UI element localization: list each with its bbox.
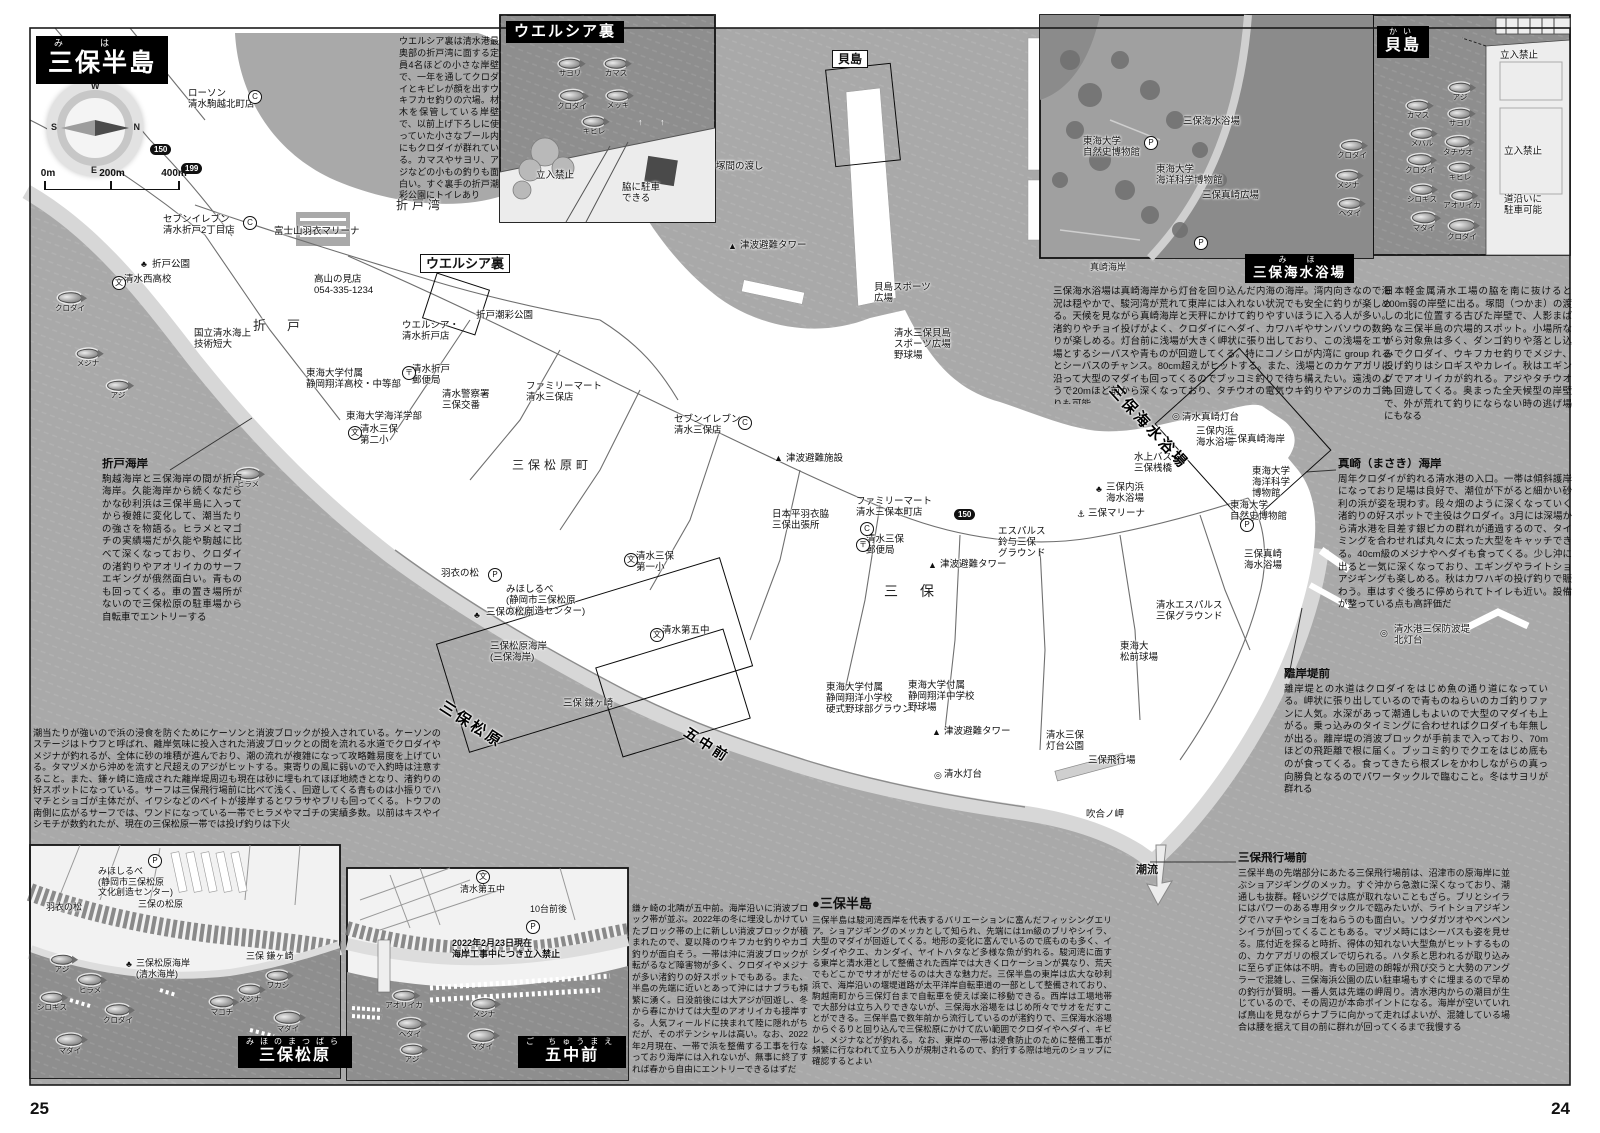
fish-icon: サヨリ	[1449, 109, 1472, 128]
map-label: 三保内浜 海水浴場	[1106, 482, 1144, 504]
map-label: 三保真崎広場	[1202, 190, 1259, 201]
map-label: 羽衣の松	[441, 568, 479, 579]
map-label: 東海大学付属 静岡翔洋小学校 硬式野球部グラウンド	[826, 682, 921, 716]
school-icon: 文	[348, 426, 362, 440]
overlay-layer: み は 三保半島 N W S E 0m 200m 400m ウエルシア裏	[0, 0, 1600, 1133]
map-label: 清水エスパルス 三保グラウンド	[1156, 600, 1223, 622]
compass-south: S	[51, 122, 57, 132]
map-label: 2022年2月23日現在 海岸工事中につき立入禁止	[452, 938, 560, 959]
map-label: 東海大 松前球場	[1120, 641, 1158, 663]
fish-icon: アオリイカ	[1443, 191, 1481, 210]
map-label: 清水三保貝島 スポーツ広場 野球場	[894, 328, 951, 362]
fish-icon: メッキ	[607, 91, 630, 110]
page-title: 三保半島	[48, 49, 156, 78]
text-block-gochumae: 鎌ヶ崎の北隣が五中前。海岸沿いに消波ブロック帯が並ぶ。2022年の冬に埋没しかけ…	[632, 903, 808, 1083]
map-label: 三 保	[884, 583, 938, 600]
arrow-icon: ↑	[660, 118, 665, 127]
map-label: 三保飛行場	[1088, 755, 1136, 766]
map-label: 真崎海岸	[1090, 262, 1126, 273]
map-label: 清水三保 第一小	[636, 551, 674, 573]
text-block-rigantei: 離岸堤前 離岸堤との水道はクロダイをはじめ魚の通り道になっている。岬状に張り出し…	[1284, 668, 1548, 798]
map-label: 三保真崎 海水浴場	[1244, 549, 1282, 571]
route-badge: 150	[150, 144, 171, 155]
map-label: 清水第五中	[662, 625, 710, 636]
route-badge: 199	[181, 163, 202, 174]
scale-bar: 0m 200m 400m	[44, 168, 180, 190]
school-icon: 文	[650, 628, 664, 642]
map-label: 清水西高校	[124, 274, 172, 285]
fish-icon: メジナ	[1337, 171, 1360, 190]
map-label: みほしるべ (静岡市三保松原 文化創造センター)	[98, 866, 173, 898]
tree-icon: ♣	[1096, 485, 1102, 494]
fish-icon: ヘダイ	[1339, 199, 1362, 218]
tree-icon: ♣	[126, 960, 132, 969]
parking-icon: P	[1194, 236, 1208, 250]
map-label: 津波避難施設	[786, 453, 843, 464]
fish-icon: クロダイ	[103, 1004, 133, 1024]
text-block-orido: 折戸海岸 駒越海岸と三保海岸の間が折戸海岸。久能海岸から続くなだらかな砂利浜は三…	[102, 458, 242, 638]
kaijima-map-tag: 貝島	[832, 50, 868, 68]
tsunami-tower-icon: ▲	[774, 454, 783, 463]
fish-icon: ヒラメ	[78, 974, 102, 994]
map-label: 脇に駐車 できる	[622, 182, 660, 204]
map-label: 三保マリーナ	[1088, 508, 1145, 519]
fish-icon: クロダイ	[557, 90, 587, 110]
map-label: 道沿いに 駐車可能	[1504, 194, 1542, 216]
compass-north: N	[134, 122, 141, 132]
fish-icon: クロダイ	[1405, 154, 1435, 174]
fish-icon: キビレ	[583, 117, 606, 136]
map-label: 清水真崎灯台	[1182, 412, 1239, 423]
map-label: 三保の松原	[486, 607, 534, 618]
fish-icon: メジナ	[472, 998, 496, 1018]
lighthouse-icon: ◎	[1380, 629, 1388, 638]
link-rect-kaijima	[825, 63, 901, 167]
map-label: 折戸公園	[152, 259, 190, 270]
fish-icon: アジ	[1449, 83, 1471, 102]
map-label: 三保 鎌ヶ崎	[563, 698, 613, 709]
text-block-masaki: 真崎（まさき）海岸 周年クロダイが釣れる清水港の入口。一帯は傾斜護岸になっており…	[1338, 458, 1572, 608]
map-label: 三保松原町	[512, 458, 592, 472]
fish-icon: クロダイ	[1337, 141, 1367, 160]
page-number-left: 25	[30, 1099, 49, 1119]
map-label: 日本平羽衣脇 三保出張所	[772, 509, 829, 531]
inset-title-matsubara: みほのまつばら 三保松原	[238, 1036, 352, 1068]
map-label: ファミリーマート 清水三保本町店	[856, 496, 932, 518]
fish-icon: メジナ	[77, 349, 100, 368]
page-title-furigana: み は	[48, 39, 156, 49]
fish-icon: メバル	[1411, 129, 1434, 148]
lighthouse-icon: ◎	[1172, 412, 1180, 421]
lighthouse-icon: ◎	[934, 771, 942, 780]
post-office-icon: 〒	[856, 538, 870, 552]
arrow-icon: ↑	[638, 118, 643, 127]
map-label: 三保海水浴場	[1183, 116, 1240, 127]
text-block-kaijima: 日本軽金属清水工場の脇を南に抜けると200m弱の岸壁に出る。塚間（つかま）の渡し…	[1384, 286, 1572, 436]
text-block-miho-beach: 三保海水浴場は真崎海岸から灯台を回り込んだ内海の海岸。湾内向きなので海況は穏やか…	[1053, 286, 1391, 404]
school-icon: 文	[112, 276, 126, 290]
map-label: エスパルス 鈴与三保 グラウンド	[998, 526, 1046, 560]
map-label: 三保松原海岸 (三保海岸)	[490, 641, 547, 663]
fish-icon: キビレ	[1449, 163, 1472, 182]
marina-icon: ⚓	[1077, 510, 1085, 519]
fish-icon: ヘダイ	[398, 1018, 422, 1038]
scale-200: 200m	[99, 168, 125, 179]
map-label: 東海大学 海洋科学 博物館	[1252, 466, 1290, 500]
map-label: 立入禁止	[536, 170, 574, 181]
fish-icon: カマス	[605, 59, 628, 78]
map-label: 三保真崎海岸	[1228, 434, 1285, 445]
fish-icon: シロギス	[1407, 185, 1437, 204]
fish-icon: マダイ	[57, 1034, 83, 1054]
map-label: 吹合ノ岬	[1086, 809, 1124, 820]
map-label: ファミリーマート 清水三保店	[526, 381, 602, 403]
route-badge: 150	[954, 509, 975, 520]
map-label: 国立清水海上 技術短大	[194, 328, 251, 350]
fish-icon: クロダイ	[55, 292, 85, 312]
tree-icon: ♣	[141, 260, 147, 269]
map-label: 折戸潮彩公園	[476, 310, 533, 321]
fish-icon: アオリイカ	[385, 991, 423, 1010]
map-label: 東海大学 自然史博物館	[1230, 500, 1287, 522]
school-icon: 文	[624, 553, 638, 567]
fish-icon: サヨリ	[559, 59, 582, 78]
inset-title-welcia: ウエルシア裏	[506, 21, 624, 43]
school-icon: 文	[476, 870, 490, 884]
map-label: 羽衣の松	[46, 902, 82, 913]
parking-icon: P	[526, 920, 540, 934]
map-label: 10台前後	[530, 904, 567, 915]
parking-icon: P	[1240, 518, 1254, 532]
map-label: 清水第五中	[460, 884, 505, 895]
text-block-airfield: 三保飛行場前 三保半島の先端部分にあたる三保飛行場前は、沼津市の原海岸に並ぶショ…	[1238, 852, 1510, 1034]
fish-icon: クロダイ	[1447, 220, 1477, 240]
inset-title-kaijima: かい 貝島	[1377, 26, 1429, 58]
map-label: 清水三保 第二小	[360, 424, 398, 446]
map-label: 清水港三保防波堤 北灯台	[1394, 624, 1470, 646]
page-number-right: 24	[1551, 1099, 1570, 1119]
convenience-store-icon: C	[243, 216, 257, 230]
fish-icon: マダイ	[1412, 212, 1436, 232]
fish-icon: アジ	[51, 955, 73, 974]
welcia-map-tag: ウエルシア裏	[420, 254, 510, 273]
inset-title-gochumae: ご ちゅうまえ 五中前	[518, 1036, 626, 1068]
map-label: 潮流	[1136, 864, 1158, 877]
map-label: セブンイレブン 清水三保店	[674, 414, 741, 436]
tsunami-tower-icon: ▲	[728, 242, 737, 251]
map-label: 清水三保 灯台公園	[1046, 730, 1084, 752]
fish-icon: アジ	[401, 1045, 423, 1064]
map-label: 清水三保 郵便局	[866, 534, 904, 556]
compass-rose: N W S E	[47, 80, 143, 176]
map-label: 東海大学海洋学部	[346, 411, 422, 422]
compass-needle-tail-icon	[61, 120, 95, 136]
magazine-map-spread: み は 三保半島 N W S E 0m 200m 400m ウエルシア裏	[0, 0, 1600, 1133]
map-label: 清水灯台	[944, 769, 982, 780]
fish-icon: カマス	[1407, 101, 1430, 120]
map-label: 富士山羽衣マリーナ	[274, 226, 360, 237]
post-office-icon: 〒	[402, 366, 416, 380]
map-label: 塚間の渡し	[716, 161, 764, 172]
map-label: 津波避難タワー	[944, 726, 1011, 737]
tsunami-tower-icon: ▲	[928, 561, 937, 570]
map-label: 津波避難タワー	[940, 559, 1007, 570]
text-block-matsubara: 潮当たりが強いので浜の浸食を防ぐためにケーソンと消波ブロックが投入されている。ケ…	[33, 728, 441, 842]
fish-icon: メジナ	[239, 985, 262, 1004]
map-label: 東海大学付属 静岡翔洋中学校 野球場	[908, 680, 975, 714]
tree-icon: ♣	[474, 611, 480, 620]
map-label: 三保松原海岸 (清水海岸)	[136, 958, 190, 979]
map-label: ウエルシア・ 清水折戸店	[402, 320, 459, 342]
map-label: 清水警察署 三保交番	[442, 389, 490, 411]
fish-icon: ワカシ	[267, 971, 290, 990]
convenience-store-icon: C	[738, 416, 752, 430]
convenience-store-icon: C	[860, 522, 874, 536]
page-title-box: み は 三保半島	[36, 36, 168, 84]
map-label: 三保の松原	[138, 899, 183, 910]
compass-needle-icon	[95, 120, 129, 136]
fish-icon: マゴチ	[210, 996, 234, 1016]
map-label: セブンイレブン 清水折戸2丁目店	[163, 214, 235, 236]
map-label: 高山の見店 054-335-1234	[314, 274, 373, 296]
map-label: 東海大学付属 静岡翔洋高校・中等部	[306, 368, 401, 390]
map-label: 三保 鎌ヶ崎	[246, 951, 294, 962]
map-label: 清水折戸 郵便局	[412, 364, 450, 386]
text-block-welcia: ウエルシア裏は清水港最奥部の折戸湾に面する定員4名ほどの小さな岸壁で、一年を通し…	[399, 36, 499, 232]
parking-icon: P	[148, 854, 162, 868]
parking-icon: P	[1144, 136, 1158, 150]
inset-title-miho-beach: み ほ 三保海水浴場	[1245, 254, 1354, 283]
text-block-miho-overview: ●三保半島 三保半島は駿河湾西岸を代表するバリエーションに富んだフィッシングエリ…	[812, 896, 1112, 1086]
fish-icon: シロギス	[37, 993, 67, 1012]
map-label: 東海大学 海洋科学博物館	[1156, 164, 1223, 186]
parking-icon: P	[488, 568, 502, 582]
fish-icon: アジ	[107, 381, 129, 400]
scale-0: 0m	[41, 168, 55, 179]
map-label: 東海大学 自然史博物館	[1083, 136, 1140, 158]
tsunami-tower-icon: ▲	[932, 728, 941, 737]
map-label: 折 戸	[253, 318, 304, 333]
map-label: ローソン 清水駒越北町店	[188, 88, 255, 110]
fish-icon: タチウオ	[1443, 136, 1473, 156]
map-label: 立入禁止	[1500, 50, 1538, 61]
scale-bar-line	[44, 181, 180, 190]
fish-icon: マダイ	[275, 1012, 301, 1032]
convenience-store-icon: C	[248, 90, 262, 104]
fish-icon: マダイ	[469, 1030, 495, 1050]
map-label: 立入禁止	[1504, 146, 1542, 157]
map-label: 貝島スポーツ 広場	[874, 282, 931, 304]
map-label: 津波避難タワー	[740, 240, 807, 251]
